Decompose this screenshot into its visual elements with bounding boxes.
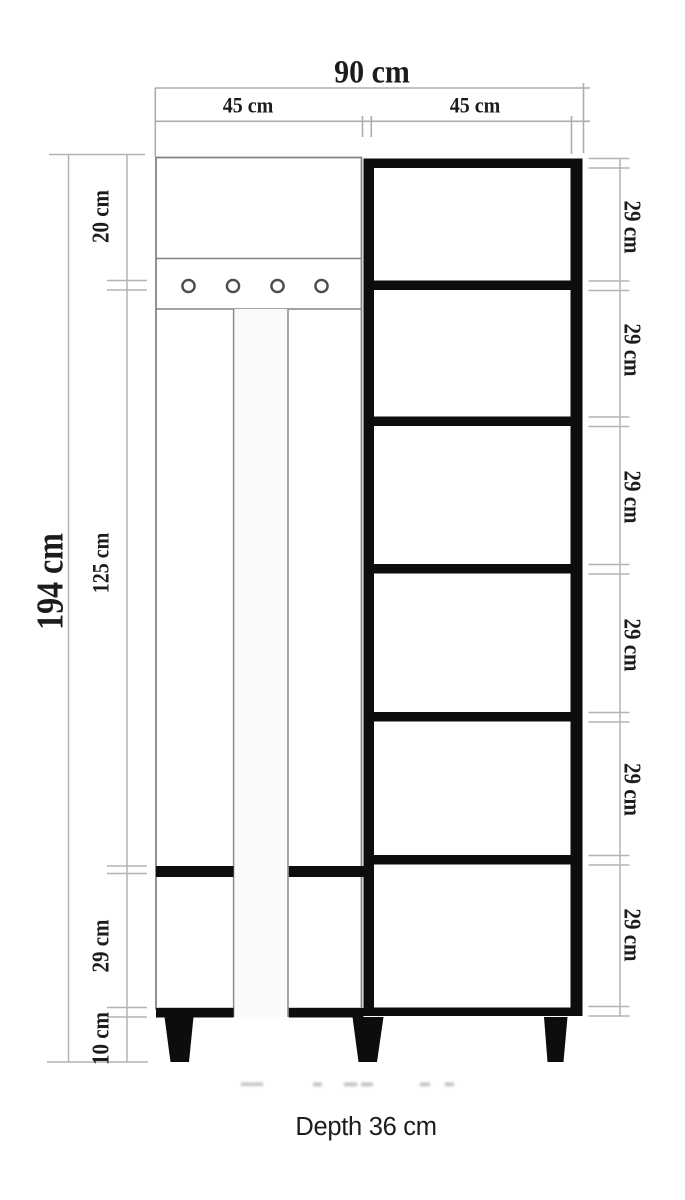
svg-text:90 cm: 90 cm: [334, 53, 410, 90]
svg-text:20 cm: 20 cm: [87, 190, 114, 243]
svg-text:29 cm: 29 cm: [619, 323, 646, 376]
svg-text:45 cm: 45 cm: [223, 92, 274, 117]
svg-text:29 cm: 29 cm: [619, 470, 646, 523]
svg-text:29 cm: 29 cm: [87, 919, 114, 972]
svg-text:10 cm: 10 cm: [87, 1012, 114, 1065]
svg-text:Depth 36 cm: Depth 36 cm: [295, 1113, 436, 1141]
svg-text:29 cm: 29 cm: [619, 618, 646, 671]
svg-text:29 cm: 29 cm: [619, 763, 646, 816]
svg-text:194 cm: 194 cm: [29, 533, 71, 630]
svg-text:125 cm: 125 cm: [88, 533, 114, 594]
svg-text:29 cm: 29 cm: [619, 908, 646, 961]
svg-text:45 cm: 45 cm: [450, 92, 501, 117]
svg-text:29 cm: 29 cm: [619, 200, 646, 253]
